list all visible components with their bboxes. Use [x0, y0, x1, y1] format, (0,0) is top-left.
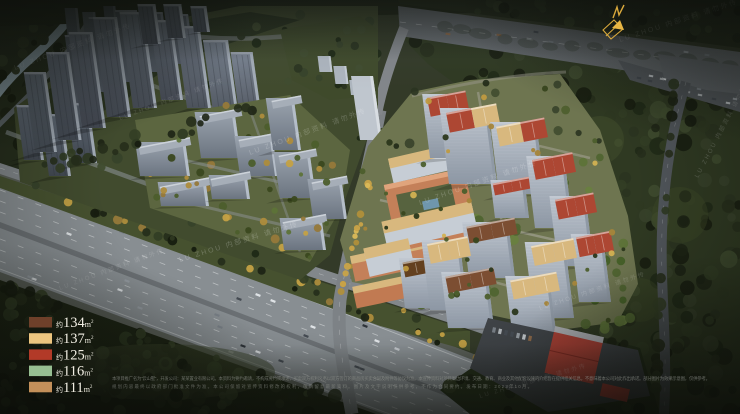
svg-text:本项目推广名为“云山墅”，开发公司：某某置业有限公司。本资料: 本项目推广名为“云山墅”，开发公司：某某置业有限公司。本资料为要约邀请，不构成要… [112, 375, 710, 382]
svg-text:规划内容最终以政府部门批准文件为准。本公司保留对宣传资料修改: 规划内容最终以政府部门批准文件为准。本公司保留对宣传资料修改的权利，敬请留意最新… [112, 383, 532, 390]
